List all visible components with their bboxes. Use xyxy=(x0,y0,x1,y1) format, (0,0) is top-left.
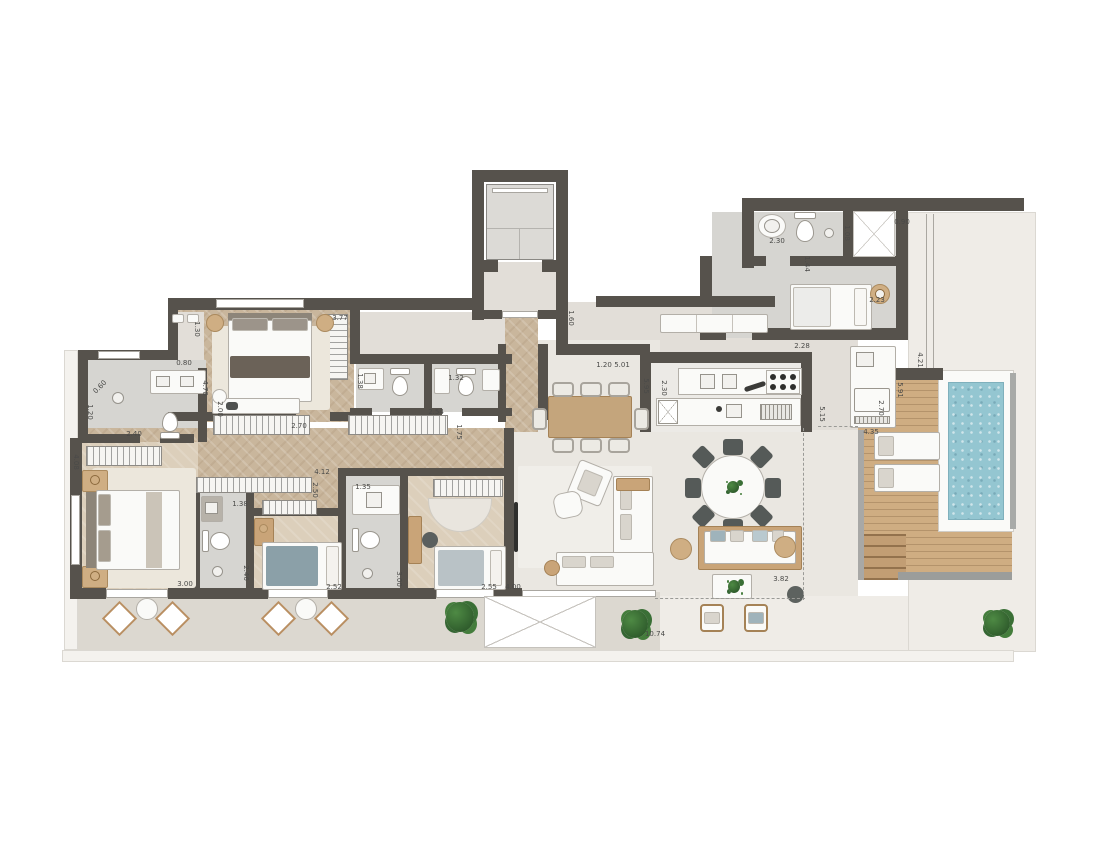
dimension-label: 4.08 xyxy=(72,454,80,470)
dimension-label: 5.15 xyxy=(818,406,826,422)
dimension-label: 2.52 xyxy=(326,583,342,591)
dimension-label: 2.28 xyxy=(794,342,810,350)
dimension-label: 2.50 xyxy=(311,482,319,498)
dimension-label: 2.40 xyxy=(126,430,142,438)
dimension-label: 2.30 xyxy=(769,237,785,245)
dimension-label: 0.80 xyxy=(176,359,192,367)
dimension-label: 4.12 xyxy=(314,468,330,476)
dimension-label: 2.00 xyxy=(216,401,224,417)
dimension-label: 3.00 xyxy=(395,571,403,587)
dimension-label: 2.46 xyxy=(242,565,250,581)
dimension-label: 3.82 xyxy=(773,575,789,583)
dimension-label: 10.74 xyxy=(645,630,665,638)
dimension-label: 4.70 xyxy=(201,380,209,396)
dimension-label: 1.30 xyxy=(193,321,201,337)
dimension-label: 1.32 xyxy=(448,374,464,382)
dimension-label: 3.00 xyxy=(177,580,193,588)
floor-plan: 0.601.202.400.804.702.001.303.772.702.54… xyxy=(0,0,1100,865)
dimension-label: 1.44 xyxy=(803,256,811,272)
dimension-label: 1.38 xyxy=(232,500,248,508)
dimension-label: 1.35 xyxy=(355,483,371,491)
dimension-label: 2.54 xyxy=(428,408,444,416)
dimension-label: 5.95 xyxy=(642,378,650,394)
dimension-label: 4.21 xyxy=(916,352,924,368)
dimension-label: 1.75 xyxy=(455,424,463,440)
dimension-label: 1.20 xyxy=(596,361,612,369)
dimension-labels-layer: 0.601.202.400.804.702.001.303.772.702.54… xyxy=(0,0,1100,865)
dimension-label: 2.70 xyxy=(291,422,307,430)
dimension-label: 1.60 xyxy=(567,310,575,326)
dimension-label: 5.91 xyxy=(896,382,904,398)
dimension-label: 4.00 xyxy=(505,583,521,591)
dimension-label: 4.35 xyxy=(863,428,879,436)
dimension-label: 0.60 xyxy=(92,379,109,396)
dimension-label: 1.20 xyxy=(86,404,94,420)
dimension-label: 3.77 xyxy=(332,314,348,322)
dimension-label: 0.90 xyxy=(894,218,910,226)
dimension-label: 1.08 xyxy=(843,225,851,241)
dimension-label: 2.23 xyxy=(869,296,885,304)
dimension-label: 1.38 xyxy=(356,373,364,389)
dimension-label: 2.30 xyxy=(660,380,668,396)
dimension-label: 2.55 xyxy=(481,583,497,591)
dimension-label: 5.01 xyxy=(614,361,630,369)
dimension-label: 2.70 xyxy=(877,400,885,416)
